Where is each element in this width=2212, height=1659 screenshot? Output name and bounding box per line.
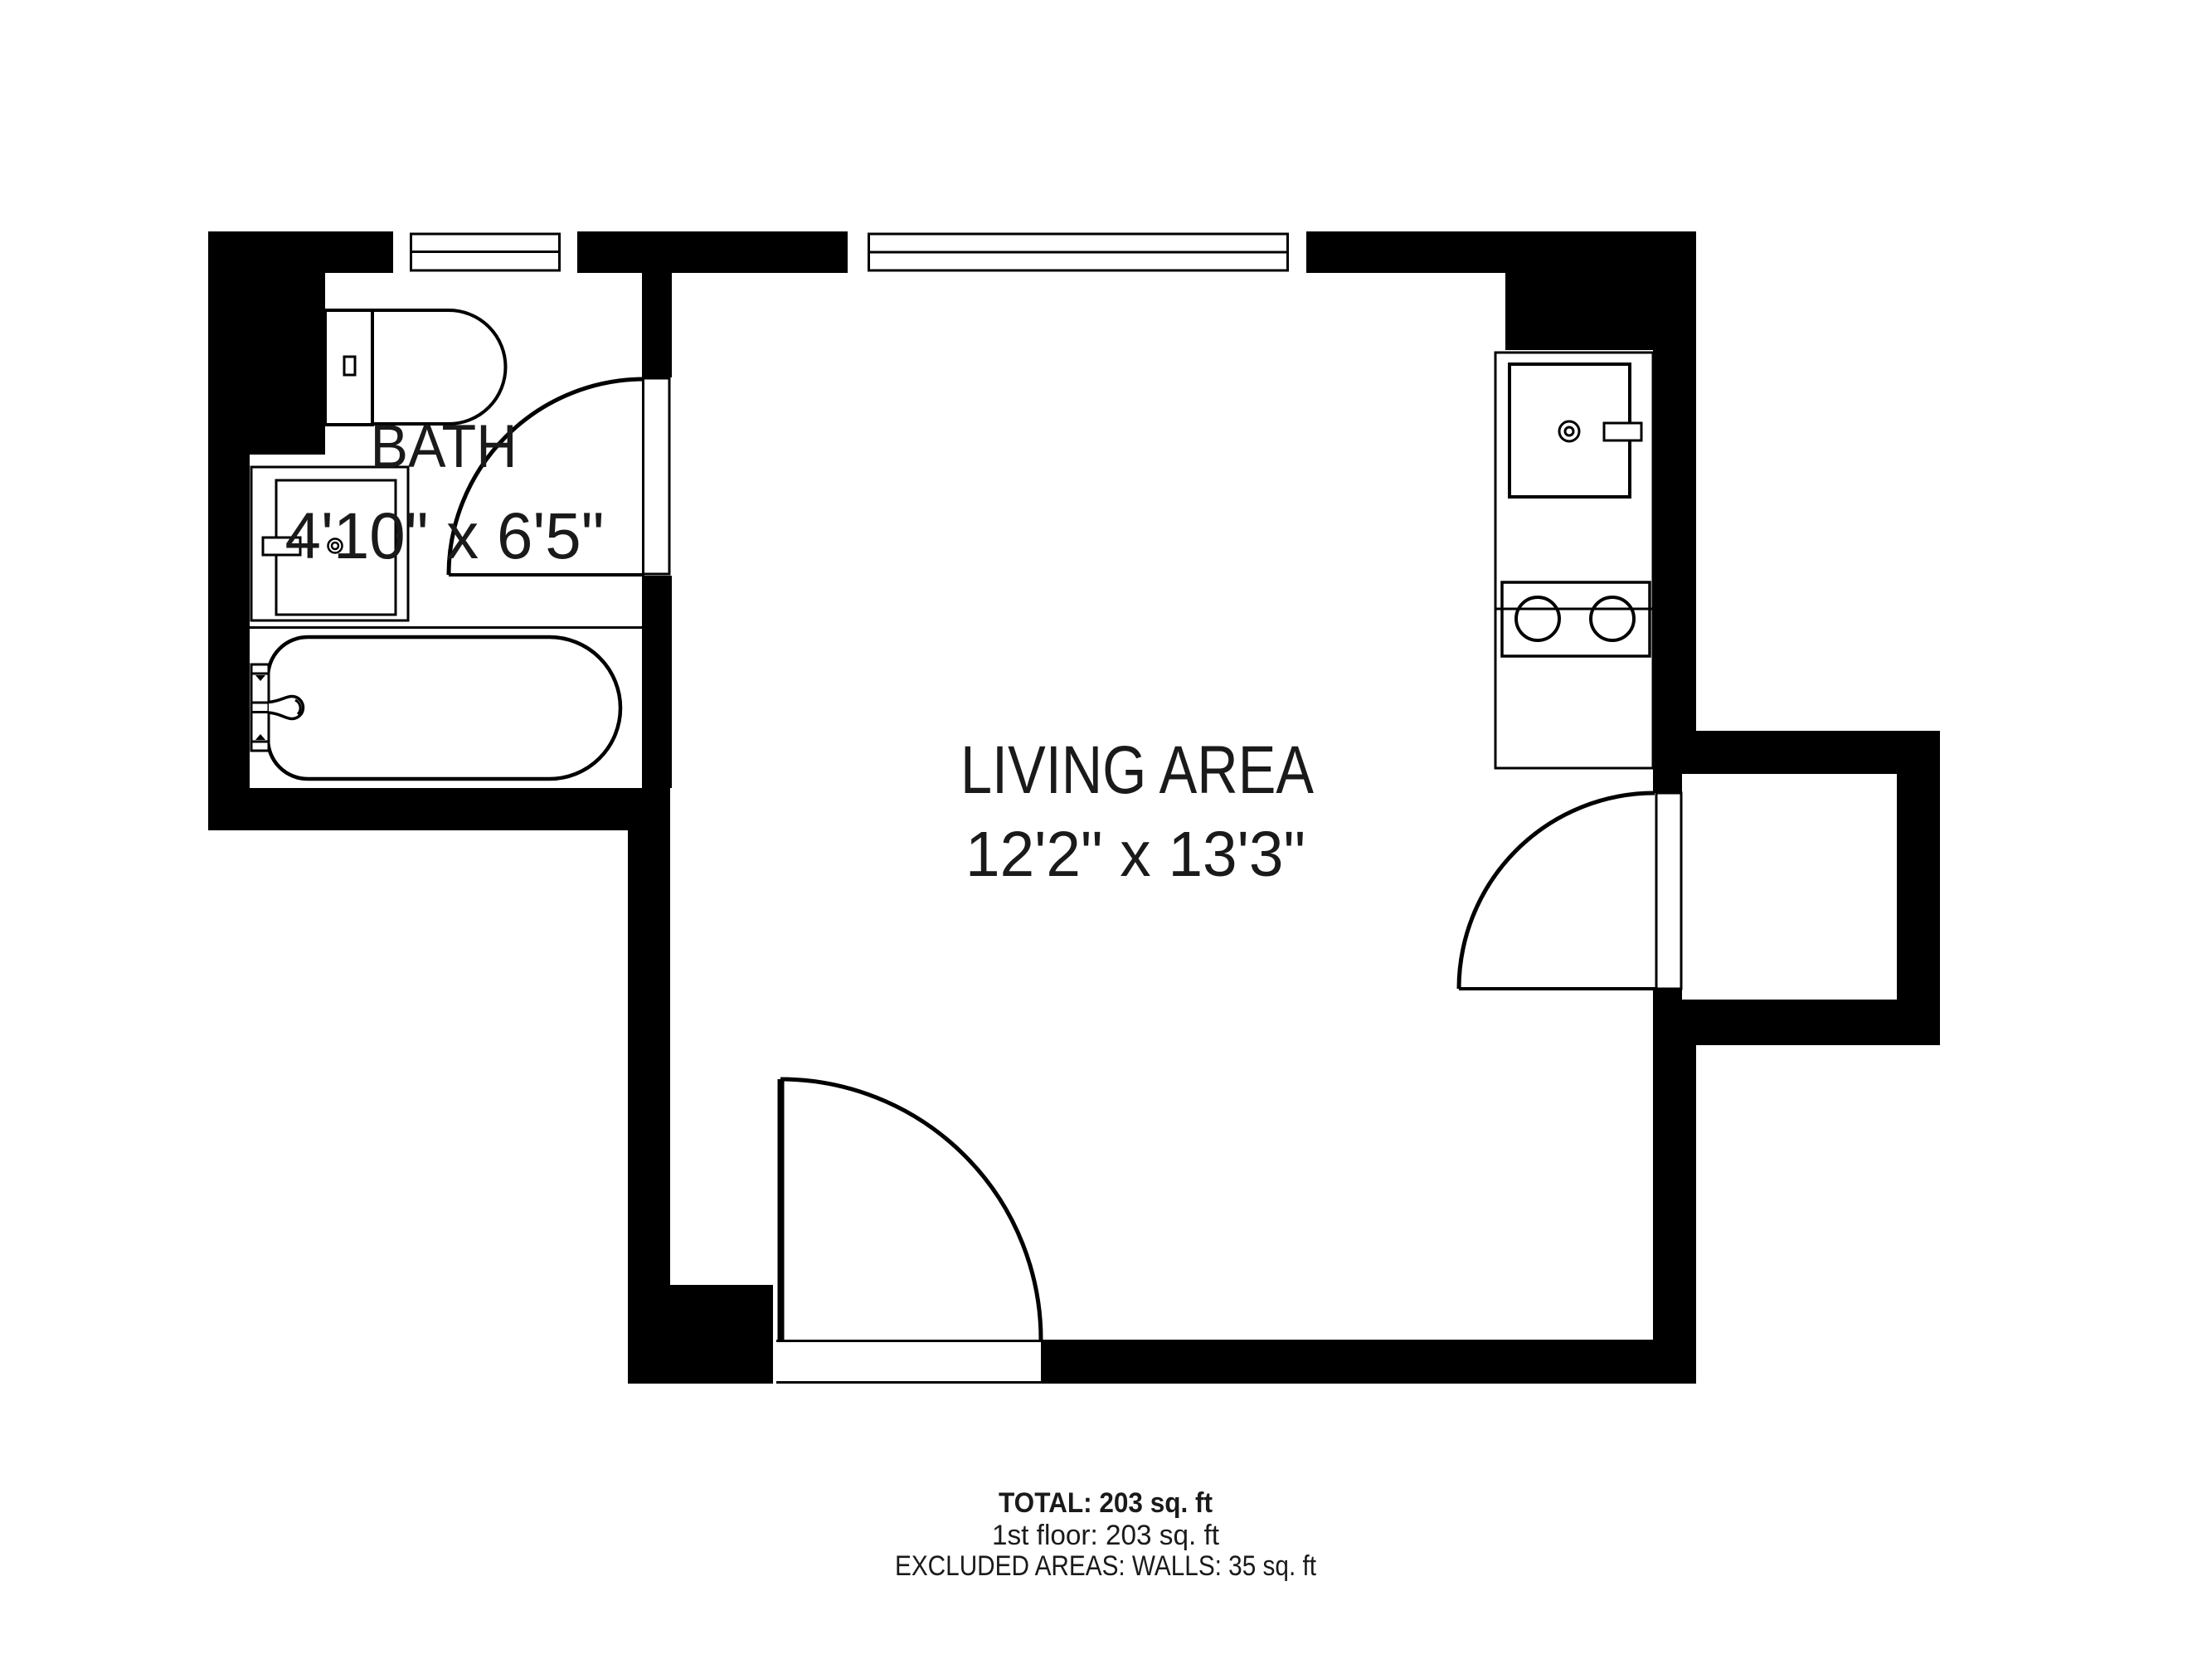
svg-text:4'10" x 6'5": 4'10" x 6'5" bbox=[285, 499, 605, 572]
svg-text:1st floor: 203 sq. ft: 1st floor: 203 sq. ft bbox=[992, 1520, 1220, 1551]
svg-text:12'2" x 13'3": 12'2" x 13'3" bbox=[965, 819, 1305, 890]
svg-text:EXCLUDED AREAS: WALLS: 35 sq.: EXCLUDED AREAS: WALLS: 35 sq. ft bbox=[895, 1550, 1316, 1582]
svg-text:LIVING AREA: LIVING AREA bbox=[960, 732, 1314, 808]
svg-text:TOTAL: 203 sq. ft: TOTAL: 203 sq. ft bbox=[999, 1487, 1213, 1519]
svg-text:BATH: BATH bbox=[371, 413, 518, 480]
